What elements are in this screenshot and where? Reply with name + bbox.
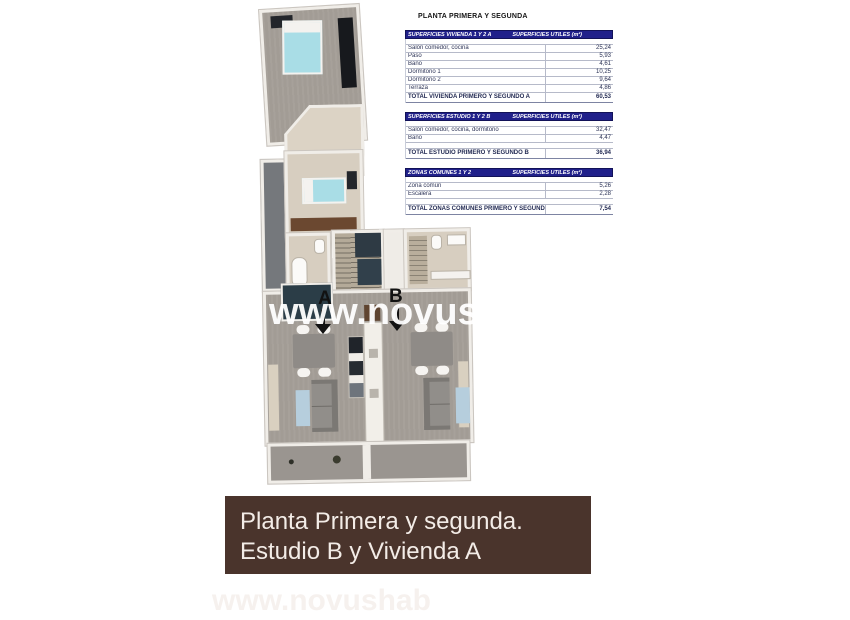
table-vivienda-a: SUPERFICIES VIVIENDA 1 Y 2 A SUPERFICIES… — [405, 30, 613, 103]
row-value: 10,25 — [545, 69, 613, 76]
header-left: ZONAS COMUNES 1 Y 2 — [408, 170, 471, 176]
row-label: Baño — [406, 135, 545, 142]
table-row: Baño4,47 — [406, 135, 613, 143]
table-row: Dormitorio 110,25 — [406, 69, 613, 77]
table-row: Dormitorio 29,64 — [406, 77, 613, 85]
total-value: 36,94 — [545, 149, 613, 158]
header-right: SUPERFICIES UTILES (m²) — [512, 114, 582, 120]
row-label: Paso — [406, 53, 545, 60]
dining-table-a — [293, 334, 336, 369]
table-body: Zona común5,26 Escalera2,28 TOTAL ZONAS … — [405, 177, 613, 215]
row-value: 25,24 — [545, 45, 613, 52]
table-total-row: TOTAL ZONAS COMUNES PRIMERO Y SEGUNDO7,5… — [406, 205, 613, 215]
caption-line-2: Estudio B y Vivienda A — [240, 537, 591, 567]
row-label: Baño — [406, 61, 545, 68]
header-right: SUPERFICIES UTILES (m²) — [512, 32, 582, 38]
terrace — [267, 440, 470, 484]
wood-wardrobe — [291, 217, 357, 231]
table-estudio-b: SUPERFICIES ESTUDIO 1 Y 2 B SUPERFICIES … — [405, 112, 613, 159]
total-label: TOTAL ESTUDIO PRIMERO Y SEGUNDO B — [406, 149, 545, 158]
table-total-row: TOTAL VIVIENDA PRIMERO Y SEGUNDO A60,53 — [406, 93, 613, 103]
kitchen-counter-b — [432, 271, 470, 279]
total-label: TOTAL VIVIENDA PRIMERO Y SEGUNDO A — [406, 93, 545, 102]
total-label: TOTAL ZONAS COMUNES PRIMERO Y SEGUNDO — [406, 205, 545, 214]
sofa-cushion-line — [312, 406, 332, 407]
header-left: SUPERFICIES VIVIENDA 1 Y 2 A — [408, 32, 491, 38]
chair — [297, 368, 310, 377]
table-row: Zona común5,26 — [406, 183, 613, 191]
watermark-ghost: www.novushab — [212, 584, 431, 618]
total-value: 60,53 — [545, 93, 613, 102]
row-value: 4,61 — [545, 61, 613, 68]
table-body: Salón comedor, cocina, dormitorio32,47 B… — [405, 121, 613, 159]
chair — [318, 368, 331, 377]
row-label: Salón comedor, cocina — [406, 45, 545, 52]
stair-mid-dark — [357, 259, 381, 285]
kitchen-counter-a — [349, 337, 364, 397]
row-label: Dormitorio 2 — [406, 77, 545, 84]
header-left: SUPERFICIES ESTUDIO 1 Y 2 B — [408, 114, 490, 120]
table-body: Salón comedor, cocina25,24 Paso5,93 Baño… — [405, 39, 613, 103]
area-tables: PLANTA PRIMERA Y SEGUNDA SUPERFICIES VIV… — [405, 13, 613, 224]
wardrobe — [338, 17, 357, 88]
table-row: Salón comedor, cocina, dormitorio32,47 — [406, 127, 613, 135]
stairs-b — [409, 236, 428, 284]
fridge — [349, 361, 363, 375]
small-pot — [289, 459, 294, 464]
row-value: 4,47 — [545, 135, 613, 142]
table-row: Escalera2,28 — [406, 191, 613, 199]
table-row: Paso5,93 — [406, 53, 613, 61]
rug-a — [296, 390, 311, 426]
flyer-page: A B www.novushab www.novushab PLANTA PRI… — [0, 0, 850, 620]
row-label: Salón comedor, cocina, dormitorio — [406, 127, 545, 134]
appliance — [349, 383, 363, 397]
caption-line-1: Planta Primera y segunda. — [240, 507, 591, 537]
row-value: 32,47 — [545, 127, 613, 134]
sofa-b — [423, 378, 450, 430]
bed-pillow — [284, 22, 320, 32]
table-zonas-comunes: ZONAS COMUNES 1 Y 2 SUPERFICIES UTILES (… — [405, 168, 613, 215]
oven — [349, 337, 363, 353]
row-label: Zona común — [406, 183, 545, 190]
bathtub — [292, 258, 306, 286]
bed-2-pillow — [304, 180, 313, 202]
row-value: 5,26 — [545, 183, 613, 190]
hob — [370, 389, 379, 398]
kitchen-island — [364, 323, 383, 443]
dining-table-b — [411, 331, 454, 366]
row-label: Escalera — [406, 191, 545, 198]
bed — [282, 20, 322, 74]
toilet-a — [315, 240, 324, 253]
curtain-left — [268, 365, 279, 431]
caption-box: Planta Primera y segunda. Estudio B y Vi… — [225, 496, 591, 574]
toilet-b — [432, 236, 441, 249]
terrace-divider — [363, 445, 372, 479]
table-row: Terraza4,86 — [406, 85, 613, 93]
table-header: SUPERFICIES VIVIENDA 1 Y 2 A SUPERFICIES… — [405, 30, 613, 39]
table-row: Baño4,61 — [406, 61, 613, 69]
bed-2 — [302, 177, 346, 204]
row-label: Terraza — [406, 85, 545, 92]
studio-b-upper — [404, 228, 471, 291]
tv-unit — [347, 171, 357, 189]
table-header: ZONAS COMUNES 1 Y 2 SUPERFICIES UTILES (… — [405, 168, 613, 177]
row-value: 5,93 — [545, 53, 613, 60]
staircase — [332, 230, 385, 293]
bedroom-middle — [284, 150, 363, 237]
sink-counter — [448, 235, 465, 244]
table-header: SUPERFICIES ESTUDIO 1 Y 2 B SUPERFICIES … — [405, 112, 613, 121]
table-total-row: TOTAL ESTUDIO PRIMERO Y SEGUNDO B36,94 — [406, 149, 613, 159]
sink — [369, 349, 378, 358]
row-value: 9,64 — [545, 77, 613, 84]
chair — [436, 366, 449, 375]
sofa-a — [311, 380, 338, 432]
row-label: Dormitorio 1 — [406, 69, 545, 76]
sofa-cushion-line — [430, 404, 450, 405]
plan-title: PLANTA PRIMERA Y SEGUNDA — [418, 13, 613, 20]
row-value: 2,28 — [545, 191, 613, 198]
plant-pot — [333, 455, 341, 463]
row-value: 4,86 — [545, 85, 613, 92]
total-value: 7,54 — [545, 205, 613, 214]
watermark: www.novushab — [269, 291, 546, 334]
stair-landing-dark — [355, 233, 381, 257]
rug-b — [456, 387, 471, 423]
table-row: Salón comedor, cocina25,24 — [406, 45, 613, 53]
chair — [415, 366, 428, 375]
header-right: SUPERFICIES UTILES (m²) — [512, 170, 582, 176]
hall-strip — [384, 229, 405, 291]
